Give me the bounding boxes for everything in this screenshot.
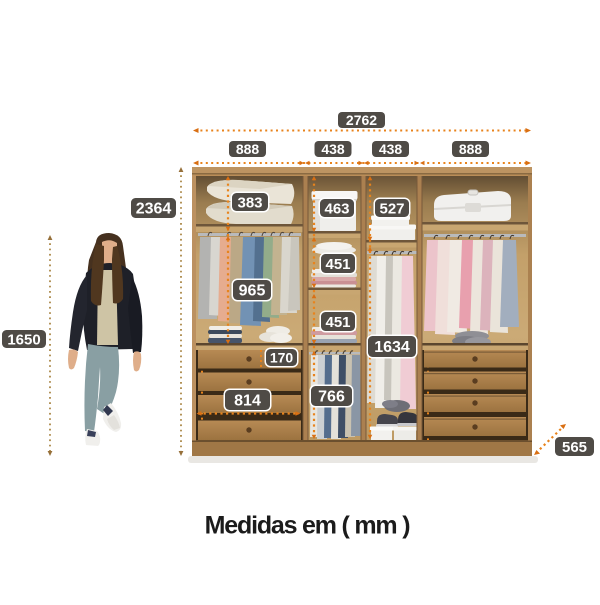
svg-text:1650: 1650 — [7, 332, 40, 349]
svg-text:451: 451 — [325, 314, 350, 331]
svg-text:527: 527 — [379, 201, 404, 218]
svg-text:565: 565 — [562, 439, 587, 456]
svg-text:463: 463 — [324, 201, 349, 218]
svg-text:170: 170 — [270, 350, 294, 366]
svg-text:814: 814 — [234, 393, 261, 410]
svg-text:965: 965 — [239, 283, 266, 300]
svg-text:1634: 1634 — [374, 339, 410, 356]
svg-text:438: 438 — [379, 141, 403, 157]
svg-text:Medidas em ( mm ): Medidas em ( mm ) — [205, 512, 411, 540]
svg-text:438: 438 — [321, 141, 345, 157]
svg-text:888: 888 — [236, 141, 260, 157]
svg-text:888: 888 — [459, 141, 483, 157]
svg-text:451: 451 — [325, 256, 350, 273]
svg-text:766: 766 — [318, 389, 345, 406]
svg-text:2364: 2364 — [136, 201, 172, 218]
svg-text:2762: 2762 — [346, 112, 377, 128]
svg-text:383: 383 — [237, 195, 262, 212]
